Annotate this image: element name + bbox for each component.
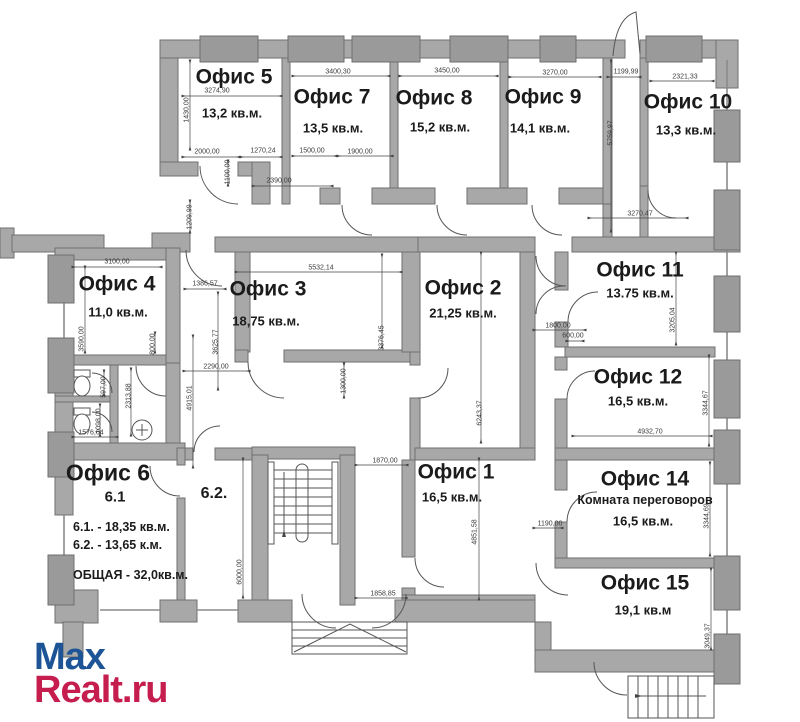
room-area-office5: 13,2 кв.м. [202, 107, 262, 120]
dimension-label: 3344,67 [703, 390, 710, 415]
dimension-label: 3100,00 [104, 259, 129, 266]
door-office12 [567, 371, 595, 399]
stairwell [268, 462, 338, 544]
room-name-office11: Офис 11 [596, 260, 683, 281]
dimension-label: 1800,00 [545, 323, 570, 330]
room-area-office15: 19,1 кв.м [615, 604, 672, 617]
room-area-office8: 15,2 кв.м. [410, 121, 470, 134]
room-area-office12: 16,5 кв.м. [608, 395, 668, 408]
room-name-office12: Офис 12 [594, 367, 683, 388]
dimension-label: 5532,14 [308, 265, 333, 272]
door-office5 [200, 166, 238, 204]
door-office3 [248, 362, 284, 398]
office6-part1-label: 6.1 [105, 490, 126, 505]
room-name-office15: Офис 15 [601, 573, 690, 594]
entrance-steps [292, 622, 407, 654]
dimension-label: 3049,37 [705, 623, 712, 648]
room-name-office10: Офис 10 [644, 92, 733, 113]
room-area-office4: 11,0 кв.м. [88, 306, 148, 319]
dimension-label: 2321,33 [672, 74, 697, 81]
dimension-label: 1386,57 [192, 281, 217, 288]
dimension-label: 4851,58 [472, 519, 479, 544]
room-name-office1: Офис 1 [418, 462, 495, 483]
office6-areas: 6.1. - 18,35 кв.м. 6.2. - 13,65 к.м. ОБЩ… [73, 518, 188, 584]
dimension-label: 3344,69 [704, 503, 711, 528]
dimension-label: 1576,64 [78, 430, 103, 437]
room-area-office2: 21,25 кв.м. [429, 307, 496, 320]
door-wc-lobby [136, 366, 166, 396]
room-name-office14: Офис 14 [601, 469, 690, 490]
door-office1 [415, 558, 444, 587]
dimension-label: 800,00 [150, 333, 157, 354]
dimension-label: 3625,77 [213, 329, 220, 354]
room-name-office5: Офис 5 [196, 67, 273, 88]
dimension-label: 3450,00 [434, 68, 459, 75]
dimension-label: 4915,01 [187, 385, 194, 410]
dimension-label: 3274,90 [204, 88, 229, 95]
door-office2 [418, 368, 448, 398]
room-area-office14: 16,5 кв.м. [613, 515, 673, 528]
dimension-label: 6243,37 [477, 400, 484, 425]
room-area-office1: 16,5 кв.м. [422, 491, 482, 504]
dimension-label: 5759,97 [608, 120, 615, 145]
room-name-office3: Офис 3 [230, 279, 307, 300]
door-office6-internal [150, 466, 180, 496]
office6-total: ОБЩАЯ - 32,0кв.м. [73, 566, 188, 584]
rear-steps [628, 676, 714, 718]
room-area-office3: 18,75 кв.м. [232, 315, 299, 328]
office6-line1: 6.1. - 18,35 кв.м. [73, 518, 188, 536]
door-main-left [302, 594, 336, 628]
maxrealt-watermark: Max Realt.ru [34, 641, 167, 708]
dimension-label: 1199,99 [614, 69, 639, 76]
room-area-office7: 13,5 кв.м. [303, 122, 363, 135]
dimension-label: 3400,30 [325, 69, 350, 76]
room-area-office10: 13,3 кв.м. [656, 124, 716, 137]
office6-part2-label: 6.2. [201, 486, 228, 502]
dimension-label: 1300,00 [341, 368, 348, 393]
dimension-label: 3205,04 [670, 307, 677, 332]
dimension-label: 1900,00 [347, 149, 372, 156]
dimension-label: 3376,45 [379, 325, 386, 350]
dimension-label: 2390,00 [266, 178, 291, 185]
room-area-office9: 14,1 кв.м. [510, 122, 570, 135]
dimension-label: 600,00 [562, 333, 583, 340]
room-subtitle-office14: Комната переговоров [577, 494, 712, 507]
dimension-label: 2000,00 [194, 149, 219, 156]
room-area-office11: 13.75 кв.м. [606, 287, 673, 300]
dimension-label: 2313,88 [126, 383, 133, 408]
door-office8 [437, 205, 467, 235]
dimension-label: 1270,24 [250, 148, 275, 155]
watermark-line2: Realt.ru [34, 674, 167, 707]
dimension-label: 3590,00 [79, 326, 86, 351]
toilet-icon [74, 370, 90, 396]
dimension-label: 1190,00 [538, 521, 563, 528]
door-office11 [568, 292, 598, 322]
dimension-label: 3270,00 [542, 70, 567, 77]
door-office7 [342, 205, 372, 235]
dimension-label: 1858,85 [370, 591, 395, 598]
dimension-label: 1430,00 [184, 97, 191, 122]
office6-line2: 6.2. - 13,65 к.м. [73, 536, 188, 554]
room-name-office6: Офис 6 [66, 462, 150, 485]
dimension-label: 1500,00 [299, 148, 324, 155]
dimension-label: 6000,00 [237, 559, 244, 584]
room-name-office9: Офис 9 [505, 87, 582, 108]
dimension-label: 1870,00 [372, 458, 397, 465]
dimension-label: 597,00 [101, 376, 108, 397]
dimension-label: 1209,99 [187, 204, 194, 229]
door-office9 [532, 205, 562, 235]
dimension-label: 2290,00 [203, 364, 228, 371]
sink-icon [132, 420, 152, 440]
dimension-label: 1100,00 [225, 160, 232, 185]
room-name-office8: Офис 8 [396, 88, 473, 109]
floor-plan: Офис 5 13,2 кв.м. Офис 7 13,5 кв.м. Офис… [0, 0, 800, 722]
dimension-label: 4932,70 [637, 429, 662, 436]
room-name-office7: Офис 7 [294, 87, 371, 108]
room-name-office2: Офис 2 [425, 278, 502, 299]
dimension-label: 3270,47 [627, 211, 652, 218]
room-name-office4: Офис 4 [79, 274, 156, 295]
